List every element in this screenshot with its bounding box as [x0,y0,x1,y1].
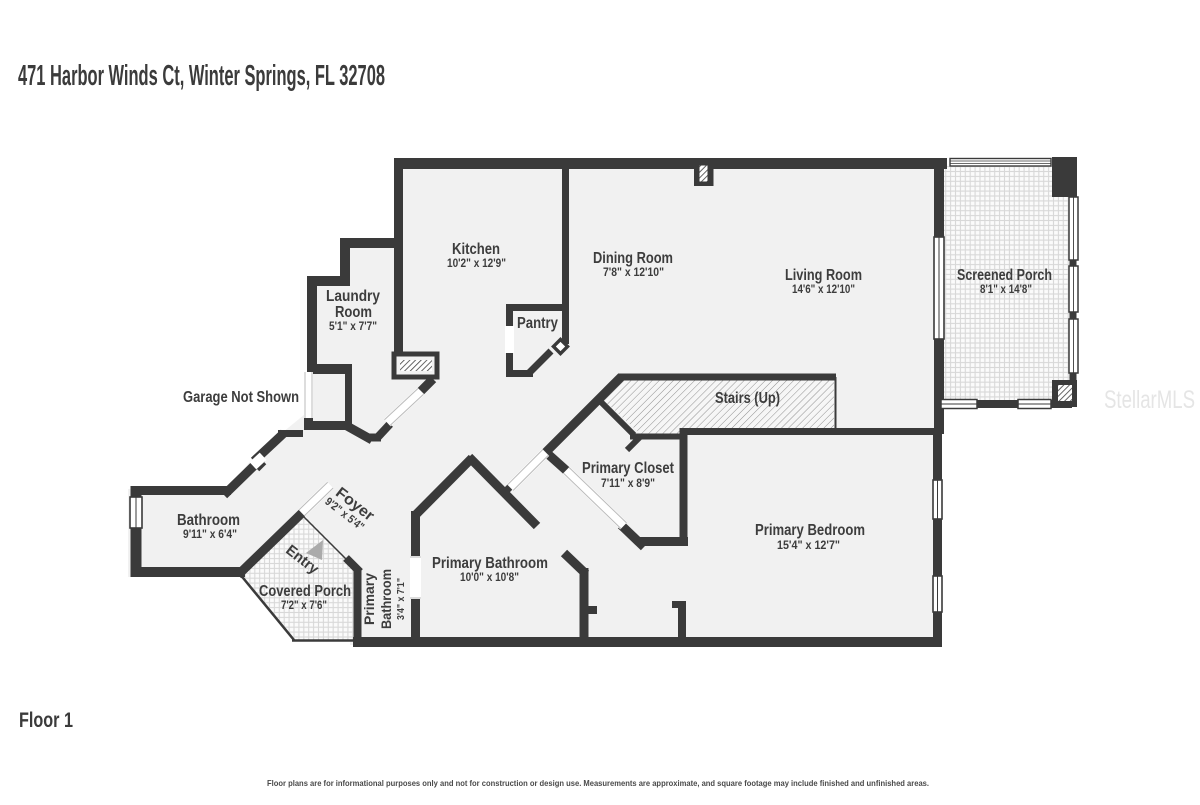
svg-text:Primary Bedroom: Primary Bedroom [755,522,865,539]
svg-text:9'11" x 6'4": 9'11" x 6'4" [183,529,237,541]
svg-text:Kitchen: Kitchen [452,241,500,258]
svg-text:Covered Porch: Covered Porch [259,583,351,600]
svg-text:Laundry: Laundry [326,288,380,305]
svg-text:Floor 1: Floor 1 [19,709,73,732]
svg-text:Bathroom: Bathroom [378,569,394,629]
svg-text:3'4" x 7'1": 3'4" x 7'1" [395,578,407,620]
svg-text:Room: Room [335,304,372,321]
svg-text:Bathroom: Bathroom [177,512,240,529]
svg-text:7'8" x 12'10": 7'8" x 12'10" [603,267,664,279]
svg-text:Dining Room: Dining Room [593,250,673,267]
svg-text:Primary Bathroom: Primary Bathroom [432,555,548,572]
svg-text:Garage Not Shown: Garage Not Shown [183,389,299,406]
svg-text:7'11" x 8'9": 7'11" x 8'9" [601,478,655,490]
svg-text:7'2" x 7'6": 7'2" x 7'6" [281,600,327,612]
svg-text:15'4" x 12'7": 15'4" x 12'7" [777,540,840,552]
svg-text:5'1" x 7'7": 5'1" x 7'7" [329,321,377,333]
svg-text:Primary: Primary [361,573,377,625]
svg-text:Pantry: Pantry [517,315,558,332]
svg-text:14'6" x 12'10": 14'6" x 12'10" [792,284,855,296]
svg-text:StellarMLS: StellarMLS [1104,386,1195,414]
svg-text:471 Harbor Winds Ct, Winter Sp: 471 Harbor Winds Ct, Winter Springs, FL … [18,60,385,92]
svg-text:10'2" x 12'9": 10'2" x 12'9" [447,258,506,270]
svg-text:Stairs (Up): Stairs (Up) [715,390,780,407]
svg-text:Primary Closet: Primary Closet [582,460,674,477]
svg-text:10'0" x 10'8": 10'0" x 10'8" [460,572,519,584]
svg-text:8'1" x 14'8": 8'1" x 14'8" [980,284,1032,296]
svg-text:Screened Porch: Screened Porch [957,267,1052,284]
svg-text:Floor plans are for informatio: Floor plans are for informational purpos… [267,778,929,788]
svg-text:Living Room: Living Room [785,267,862,284]
